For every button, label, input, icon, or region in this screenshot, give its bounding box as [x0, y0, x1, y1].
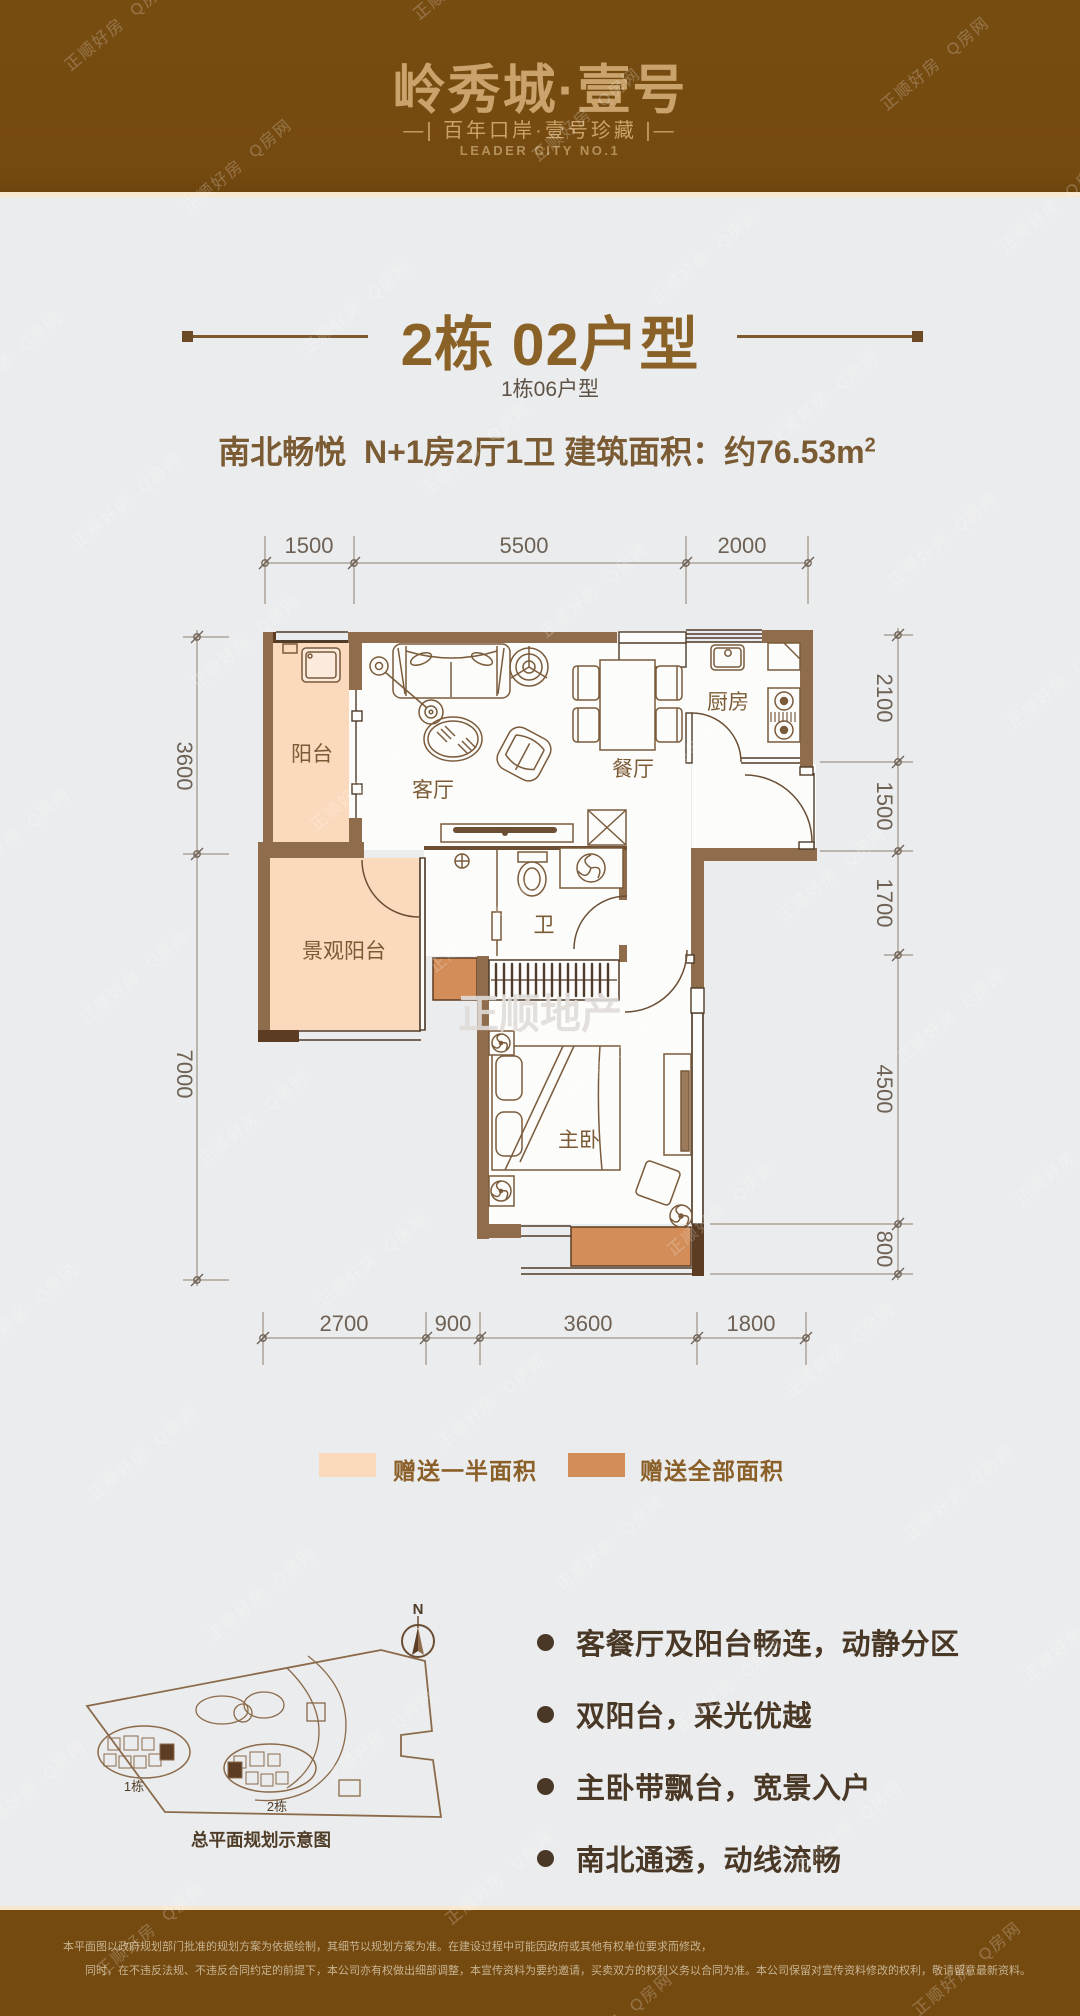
- svg-text:1700: 1700: [872, 879, 897, 928]
- svg-text:N: N: [413, 1601, 424, 1618]
- svg-text:800: 800: [872, 1231, 897, 1268]
- svg-text:4500: 4500: [872, 1065, 897, 1114]
- svg-text:2栋: 2栋: [267, 1799, 287, 1814]
- svg-text:1栋: 1栋: [124, 1779, 144, 1794]
- svg-text:总平面规划示意图: 总平面规划示意图: [191, 1830, 331, 1850]
- svg-text:阳台: 阳台: [291, 743, 333, 766]
- svg-text:餐厅: 餐厅: [612, 758, 654, 781]
- svg-text:2100: 2100: [872, 674, 897, 723]
- svg-text:1500: 1500: [872, 782, 897, 831]
- svg-text:3600: 3600: [564, 1311, 613, 1336]
- svg-text:主卧: 主卧: [558, 1129, 600, 1152]
- svg-text:厨房: 厨房: [707, 691, 749, 714]
- svg-text:2000: 2000: [718, 533, 767, 558]
- svg-text:5500: 5500: [500, 533, 549, 558]
- svg-text:900: 900: [435, 1311, 472, 1336]
- svg-text:客厅: 客厅: [412, 779, 454, 802]
- svg-text:3600: 3600: [172, 742, 197, 791]
- svg-text:7000: 7000: [172, 1050, 197, 1099]
- svg-text:1500: 1500: [285, 533, 334, 558]
- svg-text:卫: 卫: [534, 914, 555, 937]
- svg-text:2700: 2700: [320, 1311, 369, 1336]
- svg-text:1800: 1800: [727, 1311, 776, 1336]
- svg-text:景观阳台: 景观阳台: [302, 940, 386, 963]
